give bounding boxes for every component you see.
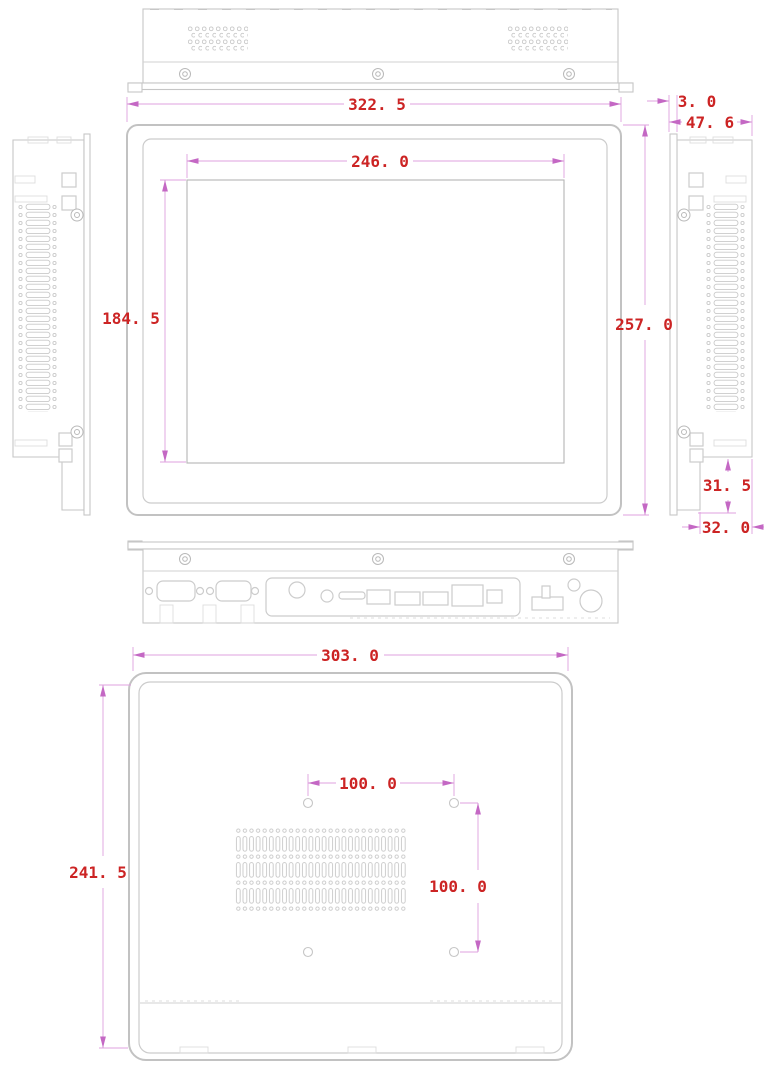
screw [678,209,690,221]
dim-label: 322. 5 [348,95,406,114]
cutout-square [59,433,72,446]
vesa-hole [450,799,459,808]
drawing-canvas: 322. 5 246. 0 184. 5 257. 0 [0,0,764,1080]
screw [564,69,575,80]
screw [71,209,83,221]
power-jack [580,590,602,612]
right-side-view [670,134,752,515]
dim-label: 32. 0 [702,518,750,537]
left-side-view [13,134,90,515]
lan-port [452,585,483,606]
screw [678,426,690,438]
cutout-square [690,433,703,446]
sim-slot [339,592,365,599]
top-view [128,9,633,92]
left-front-flange [84,134,90,515]
dim-depth: 47. 6 [669,113,752,136]
flange-tab-right [619,83,633,92]
dim-label: 303. 0 [321,646,379,665]
dim-label: 184. 5 [102,309,160,328]
dim-label: 31. 5 [703,476,751,495]
dim-label: 47. 6 [686,113,734,132]
dim-rear-height: 241. 5 [69,685,131,1048]
audio-jack [289,582,305,598]
mounting-flange [128,83,633,90]
display-area [187,180,564,463]
flange-tab-left [128,83,142,92]
dim-label: 257. 0 [615,315,673,334]
vesa-hole [304,799,313,808]
screw [373,554,384,565]
front-view [127,125,621,515]
rear-vent-grid [235,828,406,912]
dim-label: 246. 0 [351,152,409,171]
screw [180,69,191,80]
cutout-square [62,173,76,187]
mounting-flange [128,542,633,549]
dim-step-height: 31. 5 [698,459,751,513]
bottom-view [128,541,633,623]
dim-rear-width: 303. 0 [133,646,568,671]
side-vent-column [704,203,746,412]
vesa-hole [304,948,313,957]
dim-label: 100. 0 [339,774,397,793]
usb-port [423,592,448,605]
small-port [487,590,502,603]
round-connector [321,590,333,602]
cutout-square [689,173,703,187]
usb-port [367,590,390,604]
screw [71,426,83,438]
dim-label: 100. 0 [429,877,487,896]
dim-front-width: 322. 5 [127,95,621,122]
vent-grid-right [508,26,568,52]
screw [180,554,191,565]
usb-port [395,592,420,605]
cutout-square [59,449,72,462]
side-vent-column [16,203,58,412]
rear-view [129,673,572,1060]
dim-label: 241. 5 [69,863,127,882]
cutout-square [62,196,76,210]
screw [373,69,384,80]
screw [564,554,575,565]
dim-label: 3. 0 [678,92,717,111]
technical-drawing: 322. 5 246. 0 184. 5 257. 0 [0,0,764,1080]
vent-grid-left [188,26,248,52]
dim-front-height: 257. 0 [615,125,673,515]
antenna-hole [568,579,580,591]
cutout-square [690,449,703,462]
vesa-hole [450,948,459,957]
cutout-square [689,196,703,210]
